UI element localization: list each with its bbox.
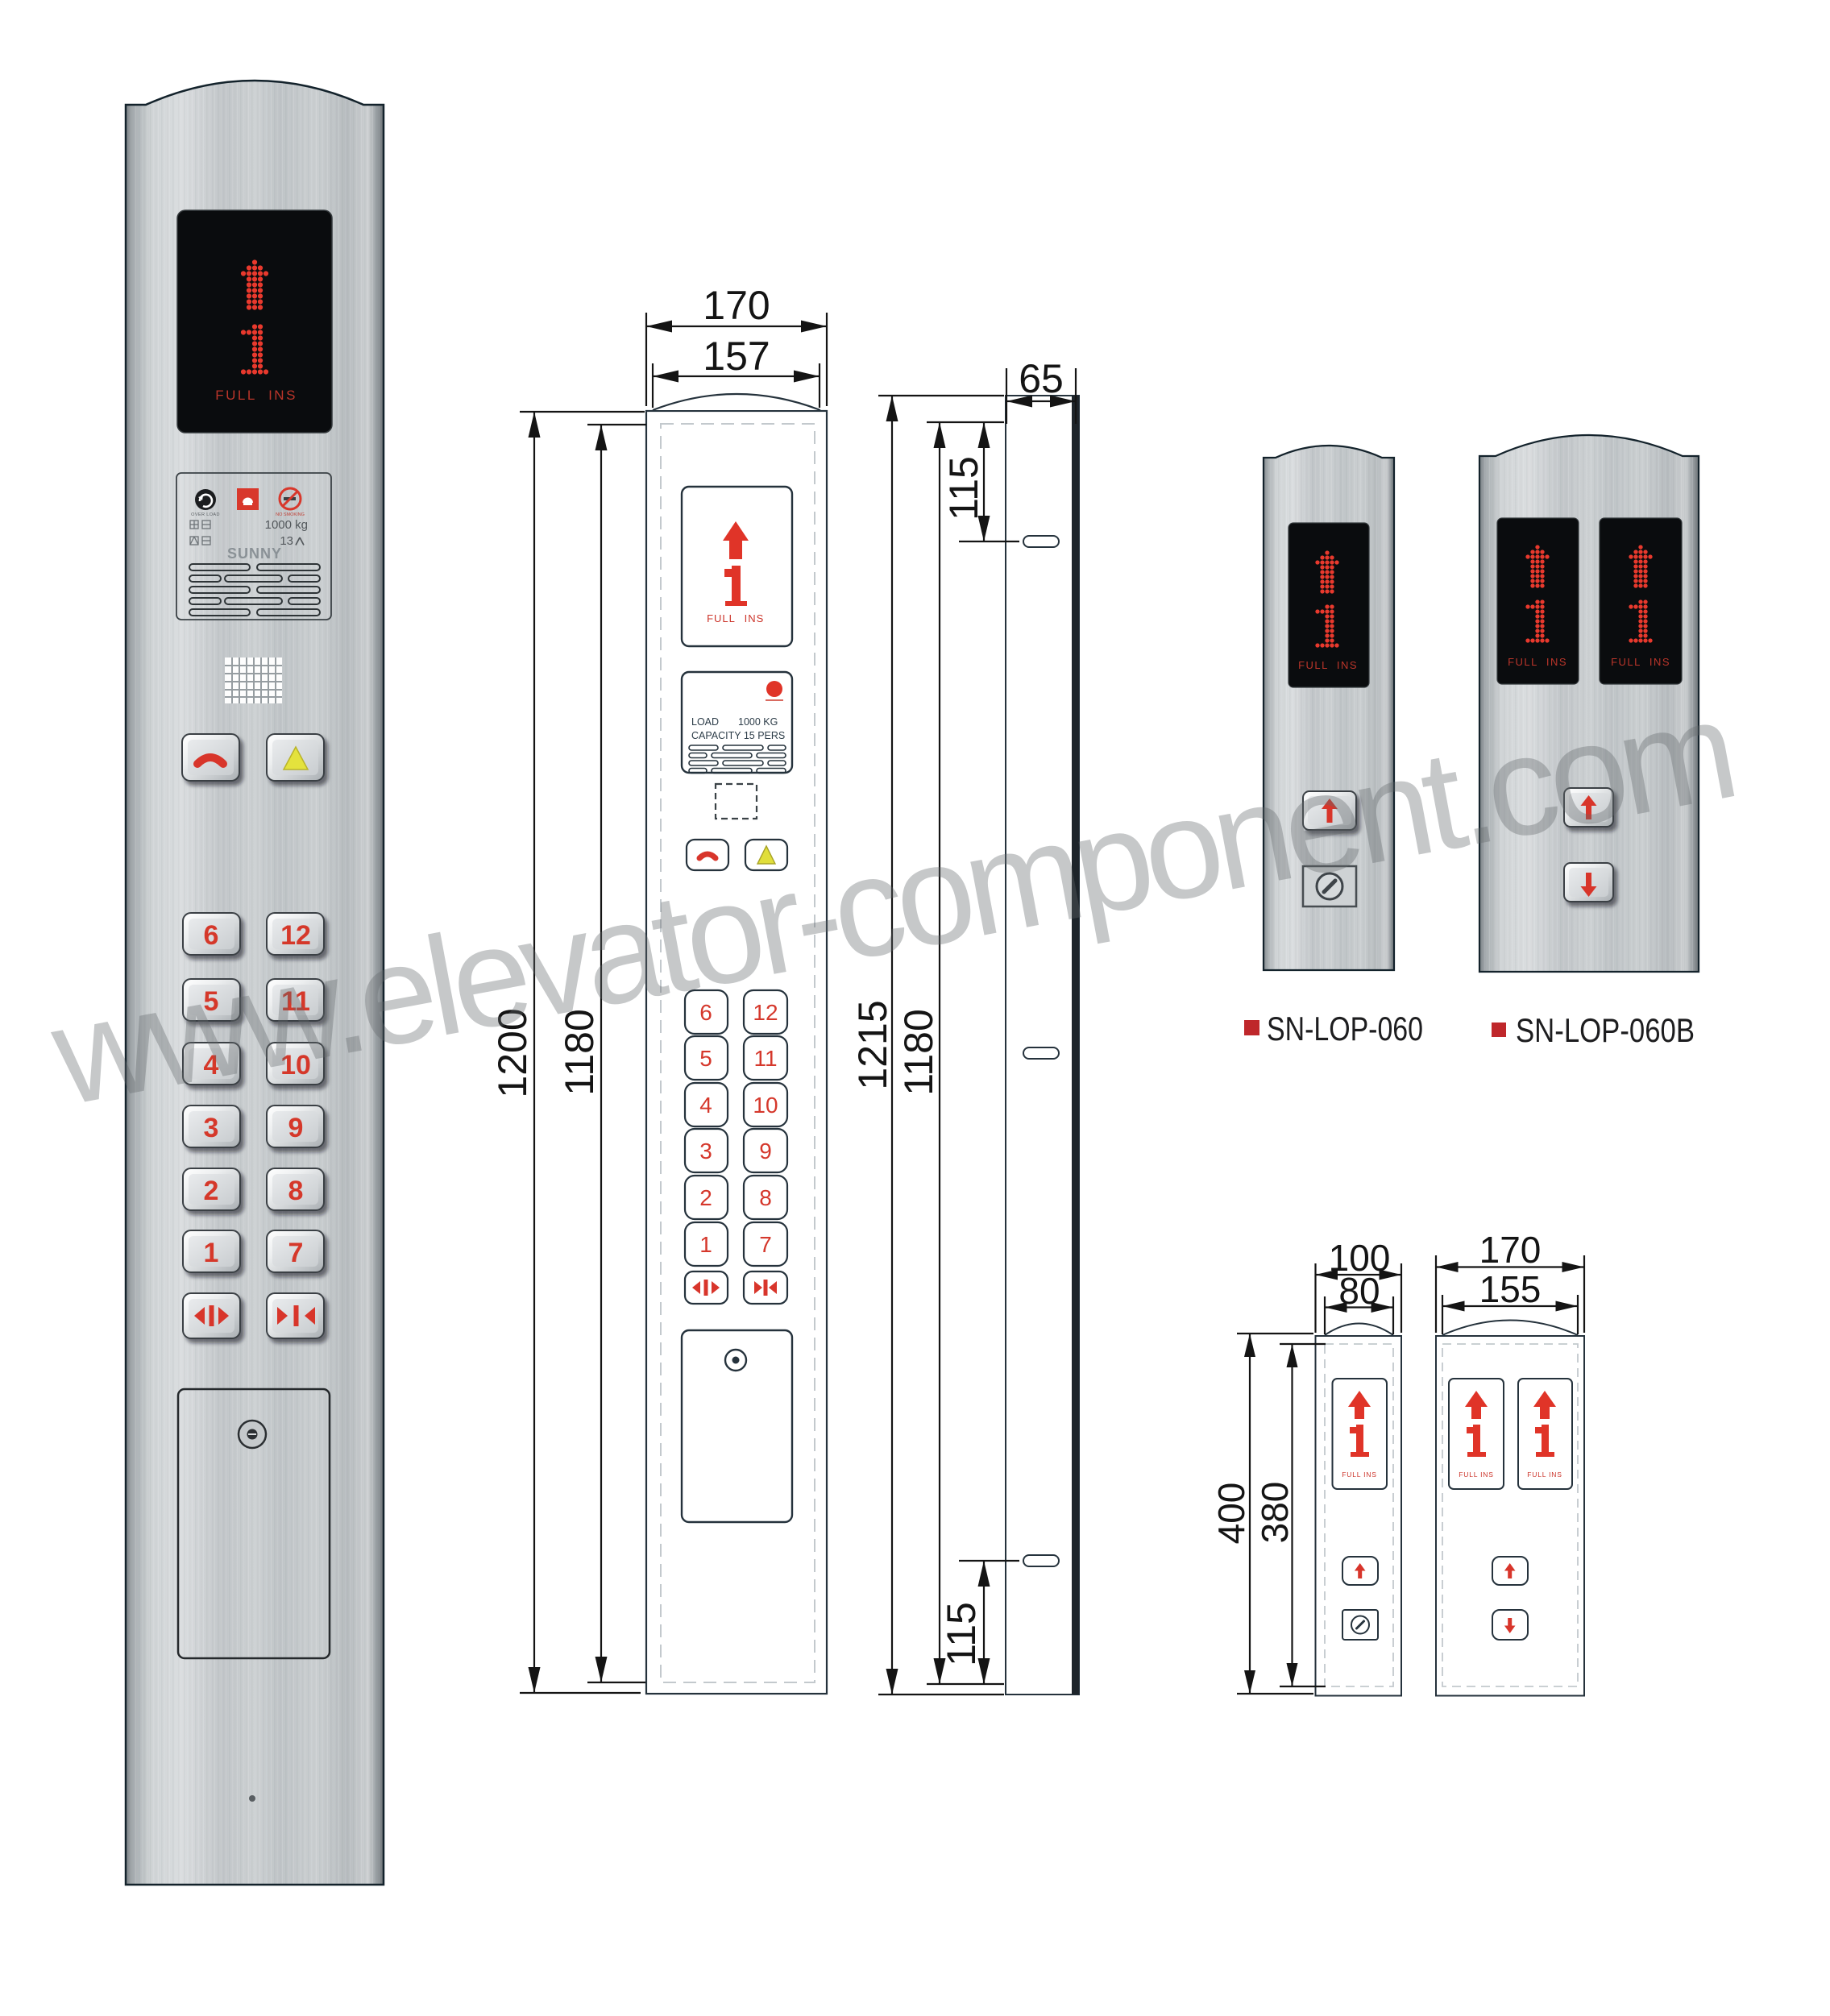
- svg-text:115: 115: [939, 1602, 984, 1666]
- svg-text:INS: INS: [1649, 656, 1670, 668]
- svg-text:8: 8: [759, 1185, 772, 1210]
- svg-text:80: 80: [1338, 1270, 1380, 1312]
- svg-text:NO SMOKING: NO SMOKING: [276, 512, 305, 517]
- svg-text:170: 170: [1479, 1229, 1542, 1271]
- svg-text:1215: 1215: [850, 1000, 895, 1089]
- svg-text:6: 6: [204, 920, 219, 951]
- svg-text:10: 10: [753, 1093, 778, 1118]
- svg-text:3: 3: [204, 1113, 219, 1143]
- svg-text:FULL: FULL: [1298, 659, 1329, 671]
- svg-text:1000 KG: 1000 KG: [738, 716, 778, 728]
- svg-text:2: 2: [699, 1185, 712, 1210]
- svg-text:SN-LOP-060B: SN-LOP-060B: [1516, 1011, 1695, 1049]
- svg-text:INS: INS: [268, 388, 297, 403]
- svg-text:380: 380: [1254, 1482, 1296, 1544]
- svg-text:155: 155: [1479, 1268, 1542, 1310]
- svg-text:1: 1: [699, 1232, 712, 1257]
- svg-text:LOAD: LOAD: [691, 716, 719, 728]
- svg-text:FULL: FULL: [215, 388, 257, 403]
- svg-text:SUNNY: SUNNY: [227, 545, 282, 562]
- svg-text:7: 7: [759, 1232, 772, 1257]
- svg-text:FULL INS: FULL INS: [1342, 1471, 1376, 1479]
- svg-text:9: 9: [288, 1113, 304, 1143]
- svg-text:OVER LOAD: OVER LOAD: [191, 512, 220, 517]
- svg-text:8: 8: [288, 1176, 304, 1206]
- svg-text:9: 9: [759, 1139, 772, 1164]
- svg-text:157: 157: [703, 334, 770, 379]
- svg-text:FULL: FULL: [707, 612, 736, 624]
- svg-text:115: 115: [941, 456, 986, 521]
- svg-text:11: 11: [753, 1046, 777, 1071]
- svg-text:INS: INS: [1337, 659, 1358, 671]
- svg-text:400: 400: [1210, 1483, 1252, 1545]
- svg-text:4: 4: [699, 1093, 712, 1118]
- svg-text:3: 3: [699, 1139, 712, 1164]
- svg-text:FULL INS: FULL INS: [1527, 1471, 1562, 1479]
- svg-text:INS: INS: [745, 612, 765, 624]
- svg-text:INS: INS: [1546, 656, 1567, 668]
- svg-text:FULL INS: FULL INS: [1459, 1471, 1493, 1479]
- svg-text:65: 65: [1019, 356, 1064, 401]
- svg-text:1180: 1180: [896, 1009, 941, 1096]
- svg-text:1000 kg: 1000 kg: [265, 518, 308, 532]
- svg-text:1: 1: [204, 1238, 219, 1268]
- svg-text:170: 170: [703, 283, 770, 328]
- svg-text:SN-LOP-060: SN-LOP-060: [1267, 1010, 1423, 1047]
- svg-text:7: 7: [288, 1238, 304, 1268]
- svg-text:2: 2: [204, 1176, 219, 1206]
- svg-text:5: 5: [699, 1046, 712, 1071]
- svg-text:FULL: FULL: [1508, 656, 1538, 668]
- svg-text:CAPACITY 15 PERS: CAPACITY 15 PERS: [691, 730, 785, 741]
- svg-text:FULL: FULL: [1611, 656, 1641, 668]
